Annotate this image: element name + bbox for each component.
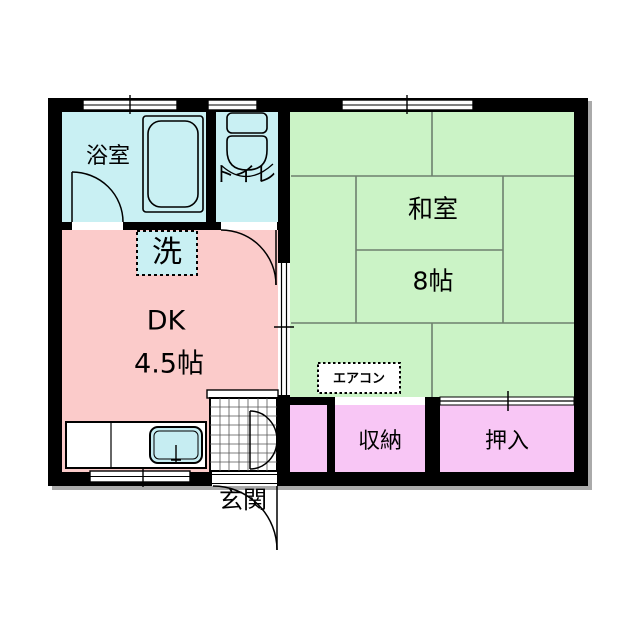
washitsu-label: 和室: [408, 197, 458, 222]
window-toilet: [208, 100, 257, 110]
dk-label: DK: [147, 308, 186, 335]
entrance-area: [207, 390, 278, 550]
closet-label: 押入: [485, 431, 529, 453]
toilet-label: トイレ: [214, 165, 277, 186]
floor-plan: 浴室 トイレ 洗 DK 4.5帖 和室 8帖 エアコン 収納 押入 玄関: [0, 0, 640, 640]
room-fills: [62, 112, 574, 472]
washing-machine-label: 洗: [152, 238, 182, 268]
room-bathroom: [62, 112, 206, 222]
sink-icon: [150, 427, 202, 464]
kitchen-counter: [66, 422, 206, 468]
storage-label: 収納: [358, 431, 402, 453]
entrance-label: 玄関: [219, 488, 267, 512]
room-hall-strip: [290, 405, 327, 472]
floor-plan-drawing: [0, 0, 640, 640]
wall-strip-storage: [327, 397, 335, 472]
bathroom-label: 浴室: [86, 146, 130, 168]
aircon-label: エアコン: [333, 373, 385, 386]
dk-size-label: 4.5帖: [134, 351, 204, 378]
wall-storage-closet: [425, 397, 440, 472]
entrance-step: [207, 390, 278, 398]
washitsu-size-label: 8帖: [413, 269, 454, 294]
